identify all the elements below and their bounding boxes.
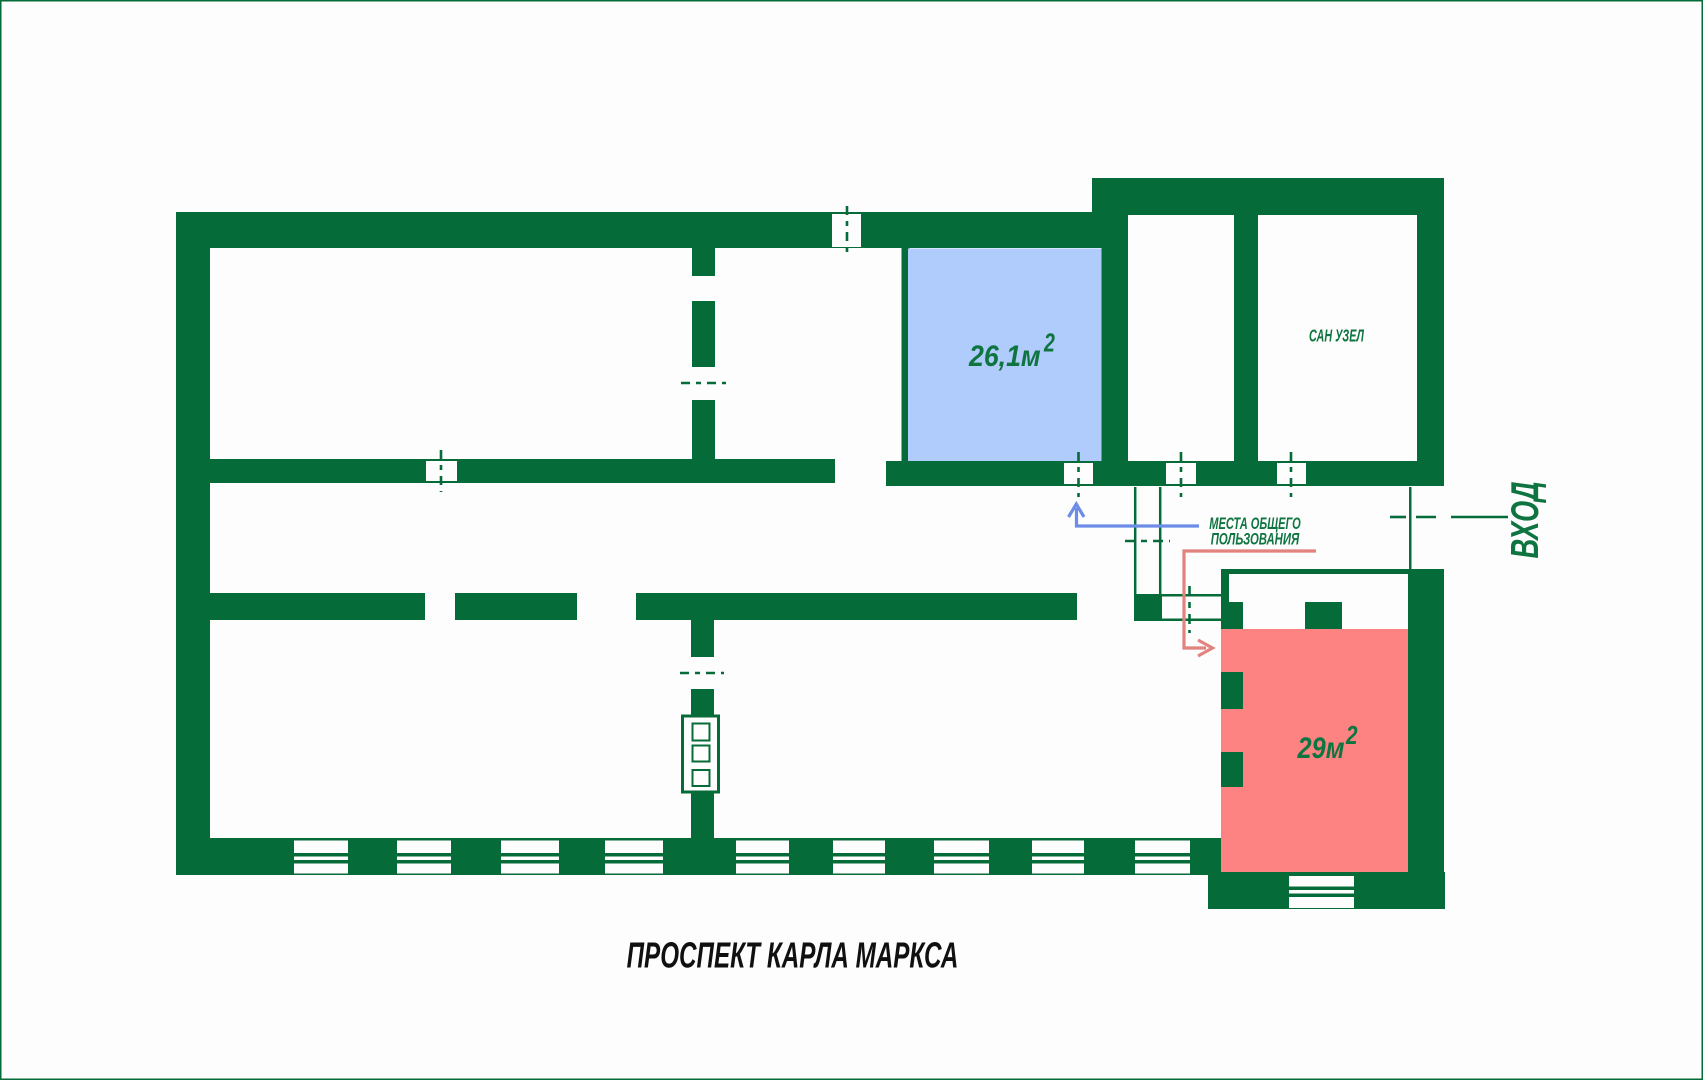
svg-text:ПОЛЬЗОВАНИЯ: ПОЛЬЗОВАНИЯ [1211,530,1300,549]
svg-text:САН УЗЕЛ: САН УЗЕЛ [1309,327,1365,346]
svg-text:ПРОСПЕКТ КАРЛА МАРКСА: ПРОСПЕКТ КАРЛА МАРКСА [627,935,959,976]
svg-text:ВХОД: ВХОД [1504,481,1547,558]
svg-text:26,1м: 26,1м [968,340,1041,374]
svg-text:2: 2 [1043,328,1055,357]
svg-text:29м: 29м [1297,731,1345,764]
svg-text:2: 2 [1345,721,1357,750]
